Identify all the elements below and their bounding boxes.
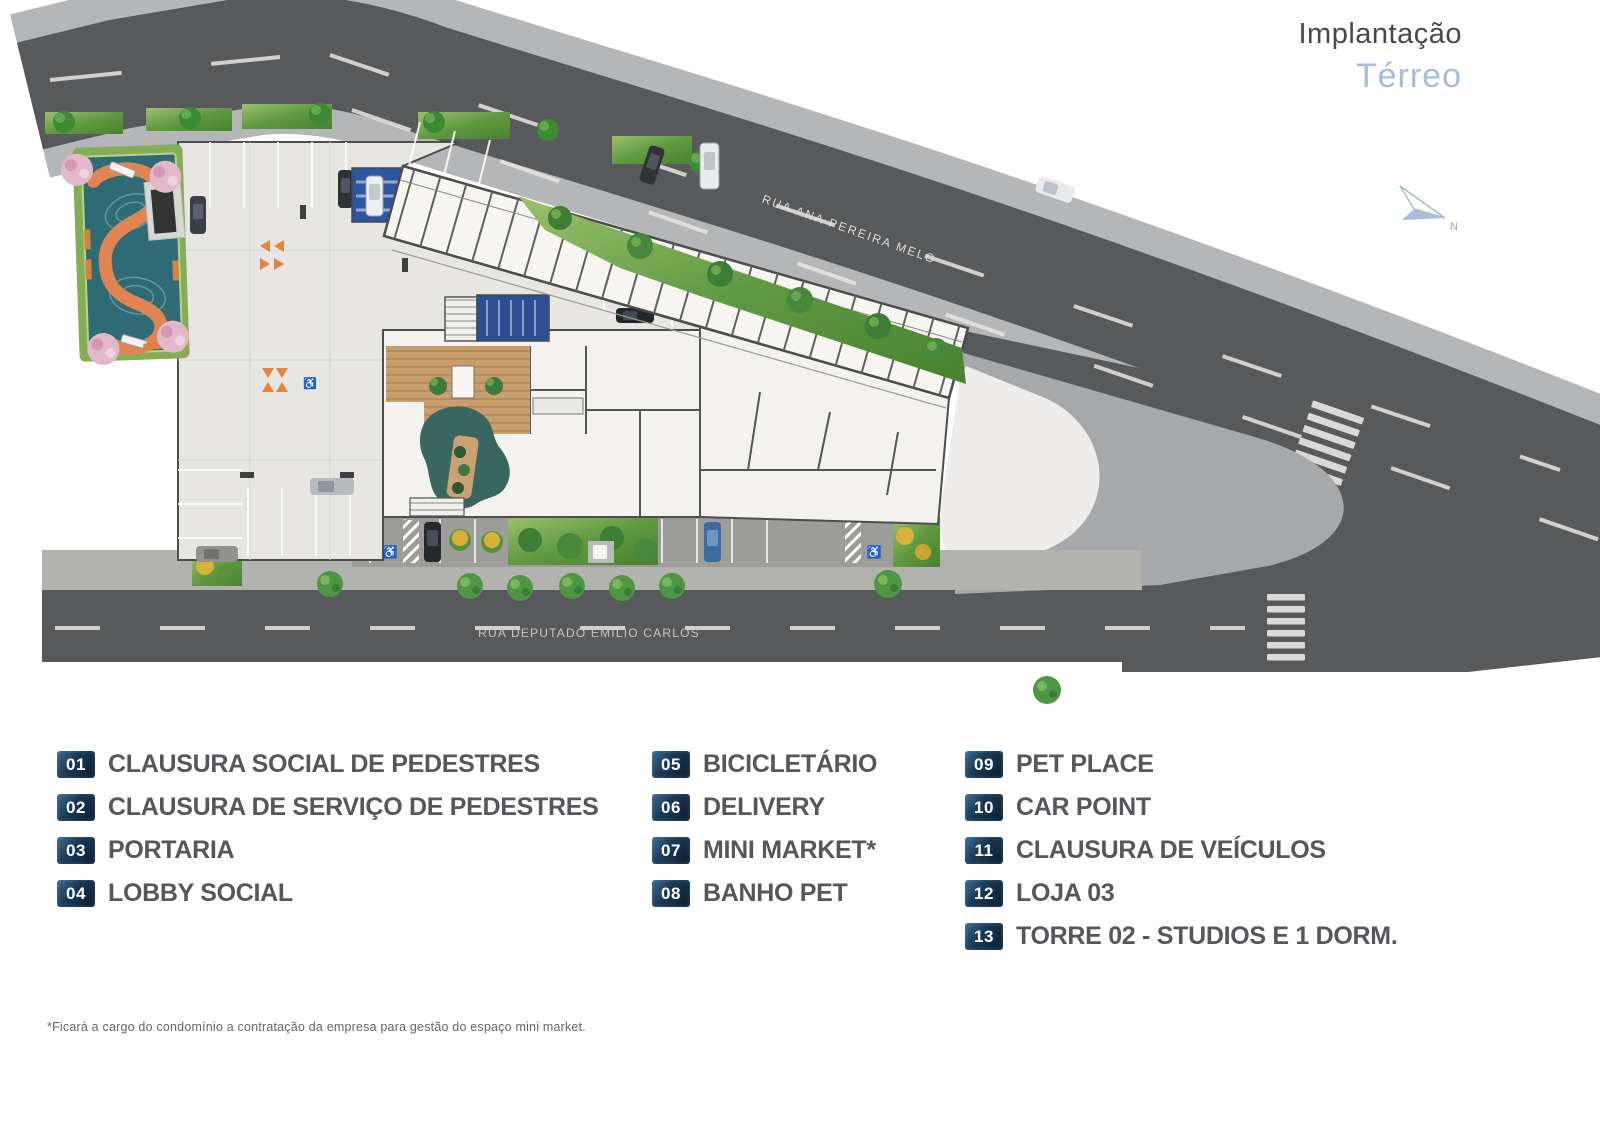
legend-item: 10CAR POINT xyxy=(965,793,1397,822)
legend-item: 13TORRE 02 - STUDIOS E 1 DORM. xyxy=(965,922,1397,951)
legend-label: MINI MARKET* xyxy=(703,836,876,865)
legend-item: 03PORTARIA xyxy=(57,836,599,865)
legend-item: 06DELIVERY xyxy=(652,793,877,822)
legend-label: CLAUSURA DE SERVIÇO DE PEDESTRES xyxy=(108,793,599,822)
bike-room xyxy=(445,295,549,341)
playground xyxy=(60,144,190,366)
legend-badge: 07 xyxy=(652,837,690,864)
no-park-hatch xyxy=(403,520,419,563)
accessible-icon: ♿ xyxy=(303,377,317,390)
legend-item: 11CLAUSURA DE VEÍCULOS xyxy=(965,836,1397,865)
legend-badge: 04 xyxy=(57,880,95,907)
page: RUA ANA PEREIRA MELO RUA DEPUTADO EMÍLIO… xyxy=(0,0,1600,1132)
title-block: Implantação Térreo xyxy=(1299,18,1463,96)
legend-item: 04LOBBY SOCIAL xyxy=(57,879,599,908)
legend-badge: 13 xyxy=(965,923,1003,950)
legend-column-3: 09PET PLACE 10CAR POINT 11CLAUSURA DE VE… xyxy=(965,750,1397,951)
north-label: N xyxy=(1450,221,1458,233)
stairwell xyxy=(445,297,477,341)
legend-label: CAR POINT xyxy=(1016,793,1151,822)
legend-label: LOJA 03 xyxy=(1016,879,1114,908)
legend-item: 09PET PLACE xyxy=(965,750,1397,779)
legend-badge: 05 xyxy=(652,751,690,778)
legend-badge: 12 xyxy=(965,880,1003,907)
legend-badge: 10 xyxy=(965,794,1003,821)
legend-item: 05BICICLETÁRIO xyxy=(652,750,877,779)
legend-badge: 03 xyxy=(57,837,95,864)
legend-badge: 06 xyxy=(652,794,690,821)
no-park-hatch xyxy=(845,520,861,563)
street-label-bottom: RUA DEPUTADO EMÍLIO CARLOS xyxy=(478,625,700,640)
legend-badge: 11 xyxy=(965,837,1003,864)
legend-label: PORTARIA xyxy=(108,836,234,865)
legend-item: 08BANHO PET xyxy=(652,879,877,908)
legend-badge: 08 xyxy=(652,880,690,907)
page-subtitle: Térreo xyxy=(1299,57,1463,96)
accessible-icon: ♿ xyxy=(867,545,882,559)
legend-label: BANHO PET xyxy=(703,879,848,908)
north-arrow-icon: N xyxy=(1400,186,1458,233)
bottom-road xyxy=(42,588,1242,662)
legend-label: CLAUSURA SOCIAL DE PEDESTRES xyxy=(108,750,540,779)
site-plan: RUA ANA PEREIRA MELO RUA DEPUTADO EMÍLIO… xyxy=(0,0,1600,1132)
legend-label: PET PLACE xyxy=(1016,750,1154,779)
legend-label: LOBBY SOCIAL xyxy=(108,879,293,908)
legend-label: CLAUSURA DE VEÍCULOS xyxy=(1016,836,1326,865)
page-title: Implantação xyxy=(1299,18,1463,51)
legend-item: 07MINI MARKET* xyxy=(652,836,877,865)
legend-label: DELIVERY xyxy=(703,793,825,822)
legend-label: BICICLETÁRIO xyxy=(703,750,877,779)
legend-label: TORRE 02 - STUDIOS E 1 DORM. xyxy=(1016,922,1397,951)
accessible-icon: ♿ xyxy=(383,545,398,559)
legend-item: 02CLAUSURA DE SERVIÇO DE PEDESTRES xyxy=(57,793,599,822)
legend-badge: 02 xyxy=(57,794,95,821)
legend-item: 01CLAUSURA SOCIAL DE PEDESTRES xyxy=(57,750,599,779)
legend-item: 12LOJA 03 xyxy=(965,879,1397,908)
legend-column-2: 05BICICLETÁRIO 06DELIVERY 07MINI MARKET*… xyxy=(652,750,877,908)
legend-badge: 01 xyxy=(57,751,95,778)
legend-column-1: 01CLAUSURA SOCIAL DE PEDESTRES 02CLAUSUR… xyxy=(57,750,599,908)
footnote: *Ficará a cargo do condomínio a contrata… xyxy=(47,1020,586,1034)
legend-badge: 09 xyxy=(965,751,1003,778)
